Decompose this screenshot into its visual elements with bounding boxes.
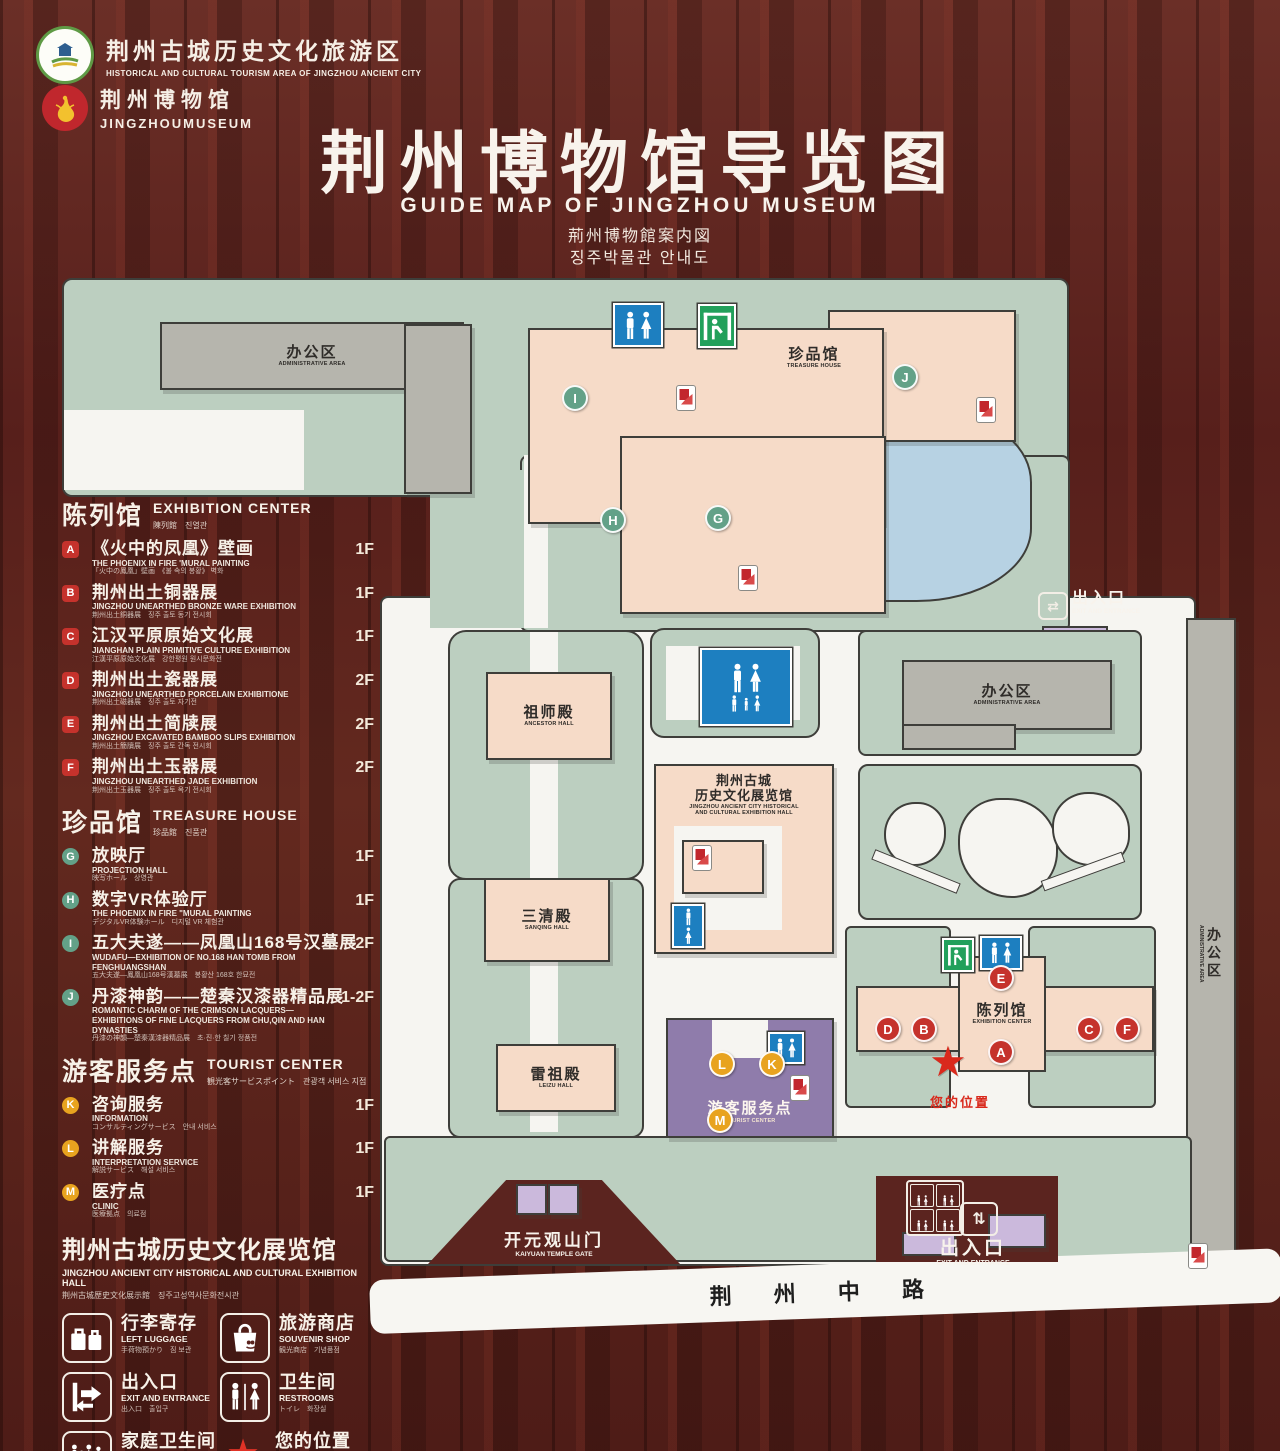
tourism-area-name-en: HISTORICAL AND CULTURAL TOURISM AREA OF … <box>106 69 421 78</box>
souvenir-shop-zh: 旅游商店 <box>279 1313 355 1334</box>
legend-item-M: M医疗点CLINIC医療拠点 의료점1F <box>62 1183 376 1220</box>
museum-guide-poster: 荆州古城历史文化旅游区 HISTORICAL AND CULTURAL TOUR… <box>0 0 1280 1451</box>
souvenir-shop-icon <box>220 1313 270 1363</box>
exit-entrance-en: EXIT AND ENTRANCE <box>121 1393 210 1403</box>
page-title-ja: 荊州博物館案内図 <box>0 222 1280 246</box>
map-path-notch <box>64 410 304 490</box>
kaiyuan-gate-en: KAIYUAN TEMPLE GATE <box>504 1251 604 1258</box>
legend-section-header: 游客服务点TOURIST CENTER観光客サービスポイント 관광객 서비스 지… <box>62 1052 376 1088</box>
page-title: 荆州博物馆导览图 <box>0 108 1280 207</box>
souvenir-shop-sub: 観光商店 기념품점 <box>279 1345 355 1355</box>
legend-hist-hall-zh: 荆州古城历史文化展览馆 <box>62 1230 376 1265</box>
legend-restrooms: 卫生间RESTROOMSトイレ 화장실 <box>220 1372 376 1422</box>
road-label: 荆 州 中 路 <box>709 1271 942 1311</box>
elevator-bank-icon <box>906 1180 964 1236</box>
leizu-hall-en: LEIZU HALL <box>530 1083 581 1089</box>
elevator-cell <box>910 1209 934 1232</box>
legend-sections: 陈列馆EXHIBITION CENTER陳列館 진열관A《火中的凤凰》壁画THE… <box>62 496 376 1220</box>
legend-item-K: K咨询服务INFORMATIONコンサルティングサービス 안내 서비스1F <box>62 1096 376 1133</box>
elevator-cell <box>936 1184 960 1207</box>
tourist-center-notch <box>712 1020 768 1058</box>
treasure-house-label-en: TREASURE HOUSE <box>768 363 860 369</box>
page-title-en: GUIDE MAP OF JINGZHOU MUSEUM <box>0 194 1280 218</box>
exit-south-zh: 出入口 <box>908 1238 1038 1260</box>
hist-hall-annex <box>682 840 764 894</box>
restrooms-zh: 卫生间 <box>279 1372 336 1393</box>
building-sanqing-hall: 三清殿 SANQING HALL <box>484 878 610 962</box>
treasure-house-label: 珍品馆 TREASURE HOUSE <box>768 346 860 370</box>
legend-hist-hall: 荆州古城历史文化展览馆 JINGZHOU ANCIENT CITY HISTOR… <box>62 1230 376 1301</box>
tourism-area-logo-icon <box>36 26 94 84</box>
elevator-cell <box>936 1209 960 1232</box>
tourism-area-logo-text: 荆州古城历史文化旅游区 HISTORICAL AND CULTURAL TOUR… <box>106 32 421 78</box>
gate-post-east <box>548 1184 579 1215</box>
legend-item-I: I五大夫遂——凤凰山168号汉墓展WUDAFU—EXHIBITION OF NO… <box>62 934 376 980</box>
legend-family-restrooms: 家庭卫生间FAMILY RESTROOMS家庭用トイレ 가족 화장실 <box>62 1431 220 1451</box>
building-treasure-house-south <box>620 436 886 614</box>
left-luggage-sub: 手荷物預かり 짐 보관 <box>121 1345 197 1355</box>
exit-entrance-east-icon: ⇄ <box>1038 592 1068 620</box>
legend-section: 珍品馆TREASURE HOUSE珍品館 진품관G放映厅PROJECTION H… <box>62 803 376 1043</box>
legend-section-header: 珍品馆TREASURE HOUSE珍品館 진품관 <box>62 803 376 839</box>
legend-section: 游客服务点TOURIST CENTER観光客サービスポイント 관광객 서비스 지… <box>62 1052 376 1220</box>
legend-item-D: D荆州出土瓷器展JINGZHOU UNEARTHED PORCELAIN EXH… <box>62 671 376 708</box>
exit-entrance-south-label: 出入口 EXIT AND ENTRANCE <box>908 1238 1038 1268</box>
sanqing-hall-en: SANQING HALL <box>521 925 572 931</box>
exit-south-en: EXIT AND ENTRANCE <box>908 1260 1038 1268</box>
legend-section-header: 陈列馆EXHIBITION CENTER陳列館 진열관 <box>62 496 376 532</box>
legend-souvenir-shop: 旅游商店SOUVENIR SHOP観光商店 기념품점 <box>220 1313 376 1363</box>
exhibition-center-en: EXHIBITION CENTER <box>972 1019 1031 1025</box>
building-ancestor-hall: 祖师殿 ANCESTOR HALL <box>486 672 612 760</box>
your-location-zh: 您的位置 <box>275 1431 358 1451</box>
page-title-ko: 징주박물관 안내도 <box>0 244 1280 268</box>
legend-item-G: G放映厅PROJECTION HALL映写ホール 상영관1F <box>62 847 376 884</box>
building-admin-northwest-wing <box>404 324 472 494</box>
exit-entrance-icon <box>62 1372 112 1422</box>
sanqing-hall-zh: 三清殿 <box>521 908 572 925</box>
restroom-figures <box>730 663 763 693</box>
hist-hall-en2: AND CULTURAL EXHIBITION HALL <box>689 810 799 816</box>
legend-item-A: A《火中的凤凰》壁画THE PHOENIX IN FIRE 'MURAL PAI… <box>62 540 376 577</box>
legend-section: 陈列馆EXHIBITION CENTER陳列館 진열관A《火中的凤凰》壁画THE… <box>62 496 376 795</box>
legend-item-E: E荆州出土简牍展JINGZHOU EXCAVATED BAMBOO SLIPS … <box>62 715 376 752</box>
your-location-icon: ★ <box>220 1431 266 1451</box>
building-admin-east: 办公区 ADMINISTRATIVE AREA <box>902 660 1112 730</box>
legend-item-J: J丹漆神韵——楚秦汉漆器精品展ROMANTIC CHARM OF THE CRI… <box>62 988 376 1044</box>
building-admin-east-wing <box>902 724 1016 750</box>
family-restrooms-icon <box>62 1431 112 1451</box>
your-location-label: 您的位置 <box>905 1092 1015 1111</box>
admin-east-zh: 办公区 <box>973 683 1040 700</box>
legend-hist-hall-sub: 荆州古城歴史文化展示館 징주고성역사문화전시관 <box>62 1290 376 1301</box>
exit-east-zh: 出入口 <box>1072 590 1192 608</box>
kaiyuan-gate-zh: 开元观山门 <box>504 1231 604 1251</box>
building-exhibition-center-core: 陈列馆 EXHIBITION CENTER <box>958 956 1046 1072</box>
building-admin-strip-east: 办公区 ADMINISTRATIVE AREA <box>1186 618 1236 1290</box>
legend-exit-entrance: 出入口EXIT AND ENTRANCE出入口 출입구 <box>62 1372 220 1422</box>
treasure-house-label-zh: 珍品馆 <box>768 346 860 363</box>
legend-item-L: L讲解服务INTERPRETATION SERVICE解説サービス 해설 서비스… <box>62 1139 376 1176</box>
building-leizu-hall: 雷祖殿 LEIZU HALL <box>496 1044 616 1112</box>
left-luggage-en: LEFT LUGGAGE <box>121 1334 197 1344</box>
hist-hall-zh2: 历史文化展览馆 <box>689 789 799 804</box>
exhibition-center-zh: 陈列馆 <box>972 1002 1031 1019</box>
admin-northwest-label-zh: 办公区 <box>278 344 345 361</box>
left-luggage-zh: 行李寄存 <box>121 1313 197 1334</box>
left-luggage-icon <box>62 1313 112 1363</box>
elevator-cell <box>910 1184 934 1207</box>
legend-item-C: C江汉平原原始文化展JIANGHAN PLAIN PRIMITIVE CULTU… <box>62 627 376 664</box>
legend-your-location: ★ 您的位置YOUR LOCATIONあなたの位置 당신의 위치 <box>220 1431 376 1451</box>
legend-item-B: B荆州出土铜器展JINGZHOU UNEARTHED BRONZE WARE E… <box>62 584 376 621</box>
legend-item-F: F荆州出土玉器展JINGZHOU UNEARTHED JADE EXHIBITI… <box>62 758 376 795</box>
gate-post-west <box>516 1184 547 1215</box>
legend-icon-grid: 行李寄存LEFT LUGGAGE手荷物預かり 짐 보관 旅游商店SOUVENIR… <box>62 1313 376 1451</box>
legend-item-H: H数字VR体验厅THE PHOENIX IN FIRE "MURAL PAINT… <box>62 891 376 928</box>
legend-left-luggage: 行李寄存LEFT LUGGAGE手荷物預かり 짐 보관 <box>62 1313 220 1363</box>
family-restrooms-zh: 家庭卫生间 <box>121 1431 216 1451</box>
leizu-hall-zh: 雷祖殿 <box>530 1066 581 1083</box>
ancestor-hall-zh: 祖师殿 <box>523 704 574 721</box>
restrooms-icon <box>220 1372 270 1422</box>
tourism-area-logo-row: 荆州古城历史文化旅游区 HISTORICAL AND CULTURAL TOUR… <box>36 26 421 84</box>
admin-northwest-label-en: ADMINISTRATIVE AREA <box>278 361 345 367</box>
restrooms-en: RESTROOMS <box>279 1393 336 1403</box>
entrance-arrows-icon: ⇅ <box>960 1202 998 1236</box>
restrooms-sub: トイレ 화장실 <box>279 1404 336 1414</box>
legend-panel: 陈列馆EXHIBITION CENTER陳列館 진열관A《火中的凤凰》壁画THE… <box>62 496 376 1451</box>
exit-entrance-east-label: 出入口 EXIT AND ENTRANCE <box>1072 590 1192 616</box>
exit-entrance-zh: 出入口 <box>121 1372 210 1393</box>
your-location-star-icon: ★ <box>929 1041 967 1083</box>
admin-east-en: ADMINISTRATIVE AREA <box>973 700 1040 706</box>
admin-strip-zh: 办公区 <box>1204 925 1224 983</box>
family-figures <box>730 695 762 712</box>
tourist-center-en: TOURIST CENTER <box>707 1118 792 1124</box>
ancestor-hall-en: ANCESTOR HALL <box>523 721 574 727</box>
hist-hall-zh1: 荆州古城 <box>689 774 799 789</box>
legend-hist-hall-en: JINGZHOU ANCIENT CITY HISTORICAL AND CUL… <box>62 1268 376 1288</box>
tourism-area-name-zh: 荆州古城历史文化旅游区 <box>106 32 421 66</box>
souvenir-shop-en: SOUVENIR SHOP <box>279 1334 355 1344</box>
exit-entrance-sub: 出入口 출입구 <box>121 1404 210 1414</box>
tourist-center-zh: 游客服务点 <box>707 1100 792 1117</box>
family-restroom-block <box>700 648 792 726</box>
exit-east-en: EXIT AND ENTRANCE <box>1072 608 1192 615</box>
admin-strip-en: ADMINISTRATIVE AREA <box>1198 925 1204 983</box>
